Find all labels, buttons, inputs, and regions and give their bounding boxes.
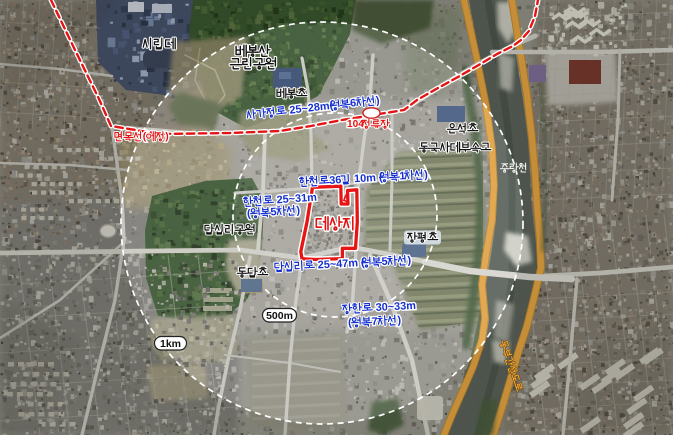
svg-text:30~33m: 30~33m — [375, 300, 416, 314]
svg-text:5: 5 — [270, 206, 277, 218]
svg-text:36: 36 — [329, 174, 342, 187]
svg-text:7: 7 — [371, 316, 378, 328]
svg-text:): ) — [165, 132, 168, 143]
svg-text:1km: 1km — [160, 338, 181, 350]
svg-text:500m: 500m — [266, 310, 293, 322]
svg-text:1: 1 — [399, 170, 406, 182]
svg-text:10m (: 10m ( — [354, 172, 384, 186]
svg-text:(: ( — [143, 132, 147, 143]
svg-text:25~47m (: 25~47m ( — [317, 257, 365, 271]
svg-text:5: 5 — [381, 256, 388, 268]
svg-text:104: 104 — [347, 119, 364, 130]
